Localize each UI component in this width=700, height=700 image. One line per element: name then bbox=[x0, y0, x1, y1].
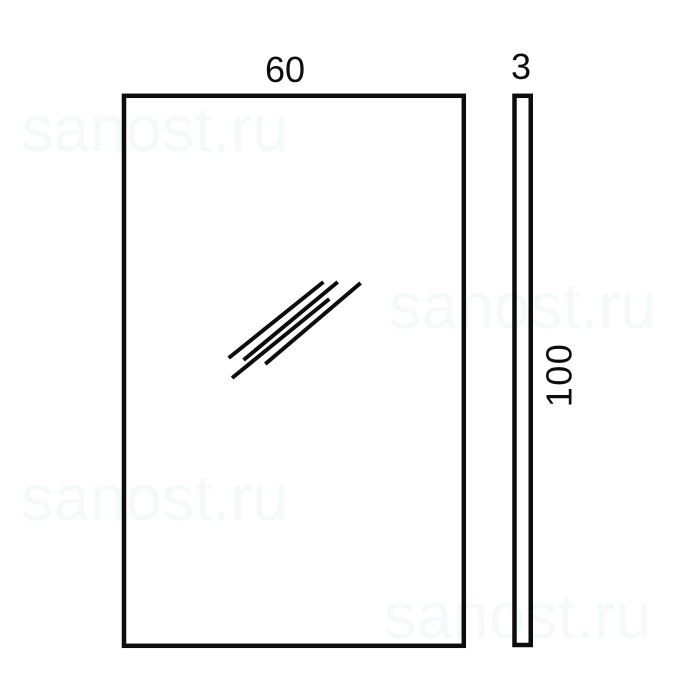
svg-text:sanost.ru: sanost.ru bbox=[21, 92, 288, 165]
svg-text:sanost.ru: sanost.ru bbox=[384, 579, 651, 652]
svg-text:3: 3 bbox=[511, 46, 531, 87]
svg-text:100: 100 bbox=[539, 343, 580, 408]
svg-text:60: 60 bbox=[265, 49, 305, 90]
svg-text:sanost.ru: sanost.ru bbox=[389, 269, 656, 342]
svg-text:sanost.ru: sanost.ru bbox=[21, 461, 288, 534]
